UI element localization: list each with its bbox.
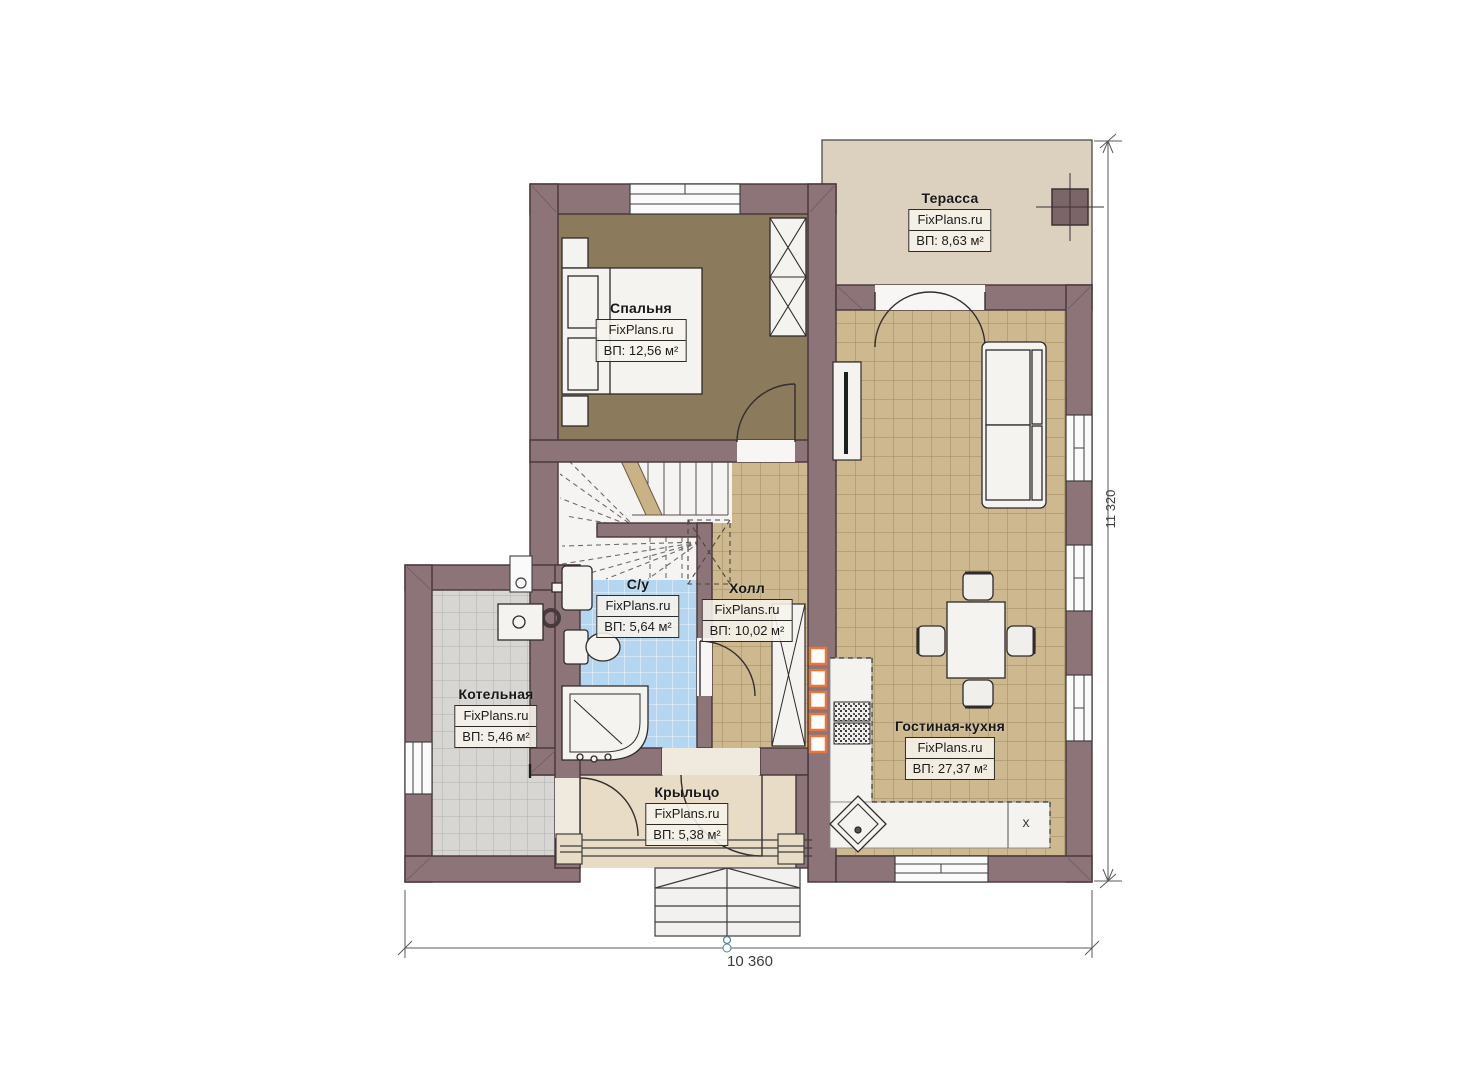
boiler-unit — [498, 604, 543, 640]
tv — [844, 372, 848, 454]
nightstand — [562, 238, 588, 268]
entrance-door-opening — [662, 748, 760, 775]
tv-cabinet — [833, 362, 861, 460]
step-rail — [778, 834, 804, 864]
bedroom-door-opening — [737, 440, 795, 462]
pillow — [568, 338, 598, 390]
kitchen-x-mark: x — [1016, 814, 1036, 830]
step-rail — [556, 834, 582, 864]
washbasin — [562, 566, 592, 610]
stove — [834, 702, 870, 721]
pillow — [568, 276, 598, 328]
terrace-area — [822, 140, 1104, 290]
vent-shaft — [810, 648, 826, 752]
sofa — [982, 342, 1046, 508]
living-right-windows — [1066, 415, 1092, 741]
bedroom-wardrobe — [770, 218, 806, 336]
bathroom-door-opening — [697, 638, 712, 696]
chair — [917, 626, 945, 656]
boiler-door-opening — [555, 778, 580, 838]
floor-plan-drawing — [0, 0, 1473, 1080]
dimension-width: 10 360 — [708, 953, 792, 970]
boiler-vent — [510, 556, 532, 592]
exterior-stair — [655, 868, 800, 944]
chair — [1007, 626, 1035, 656]
stove — [834, 723, 870, 744]
porch-floor — [558, 775, 796, 868]
terrace-door-opening — [875, 285, 985, 310]
bedroom-window — [630, 184, 740, 214]
chair — [963, 572, 993, 600]
shower — [562, 686, 648, 762]
boiler-window — [405, 742, 432, 794]
kitchen-bottom-window — [895, 856, 988, 882]
washbasin-faucet — [552, 583, 562, 592]
hall-wardrobe — [772, 604, 805, 746]
chair — [963, 680, 993, 708]
dimension-height: 11 320 — [1103, 477, 1121, 541]
dining-table — [947, 602, 1005, 678]
nightstand — [562, 396, 588, 426]
floor-plan: Терасса FixPlans.ru ВП: 8,63 м² Спальня … — [0, 0, 1473, 1080]
